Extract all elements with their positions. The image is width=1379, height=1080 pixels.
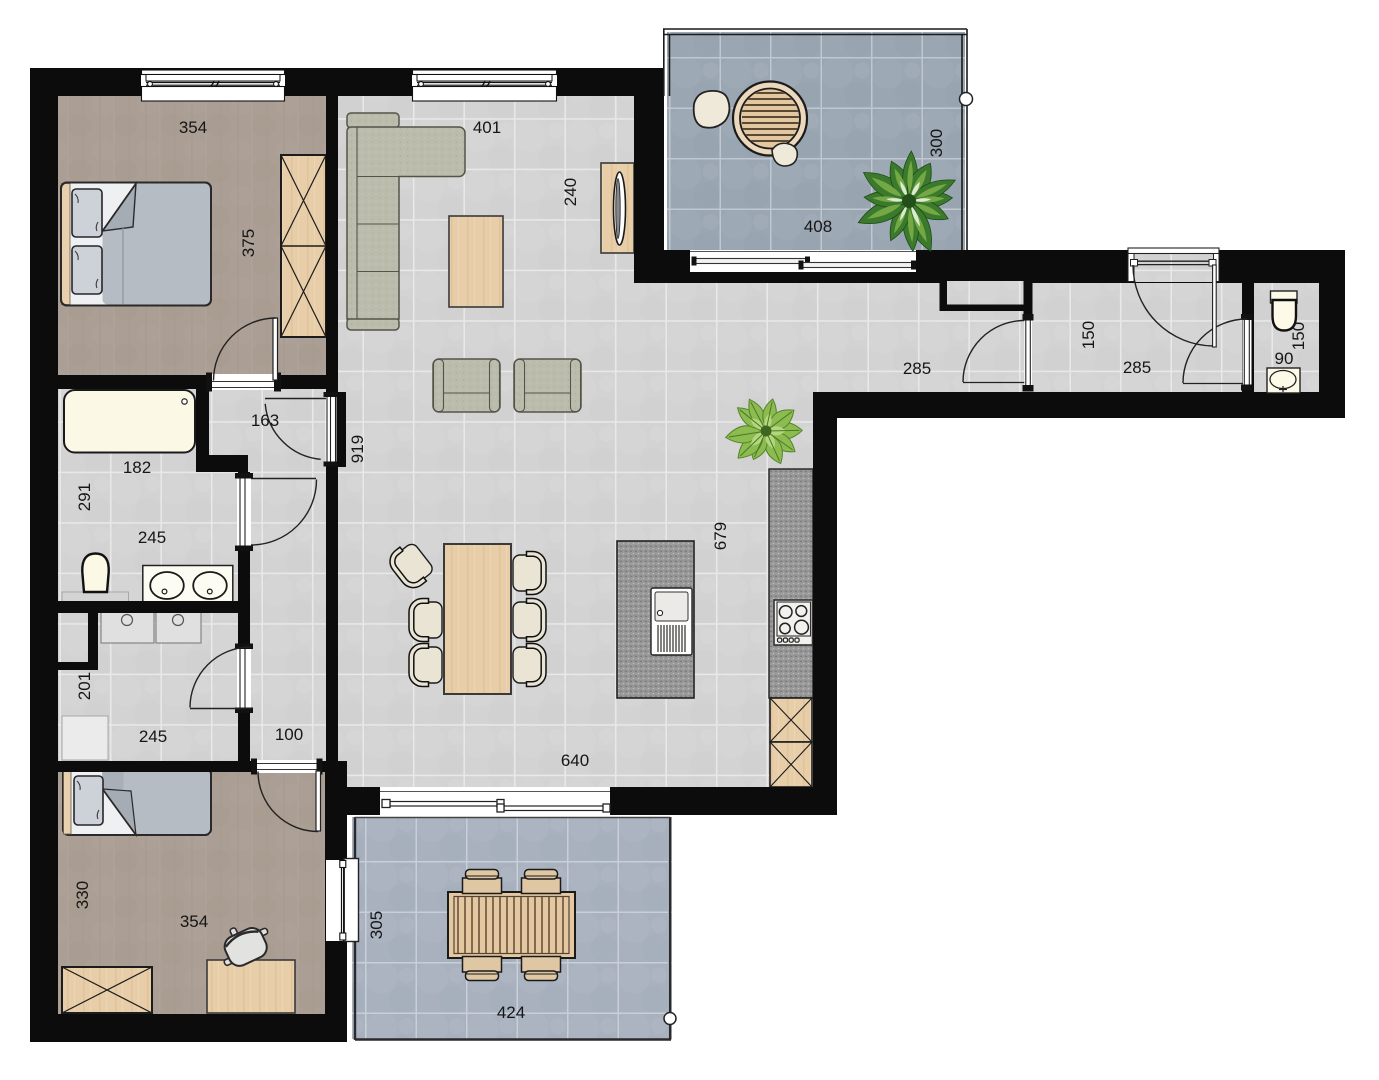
svg-text:375: 375 — [239, 229, 258, 257]
svg-text:679: 679 — [711, 522, 730, 550]
svg-text:919: 919 — [348, 435, 367, 463]
svg-text:305: 305 — [367, 911, 386, 939]
svg-text:424: 424 — [497, 1003, 525, 1022]
svg-text:245: 245 — [138, 528, 166, 547]
svg-text:330: 330 — [73, 881, 92, 909]
svg-text:640: 640 — [561, 751, 589, 770]
svg-text:245: 245 — [139, 727, 167, 746]
svg-text:354: 354 — [179, 118, 207, 137]
svg-text:100: 100 — [275, 725, 303, 744]
svg-text:163: 163 — [251, 411, 279, 430]
svg-text:285: 285 — [903, 359, 931, 378]
svg-text:408: 408 — [804, 217, 832, 236]
svg-text:150: 150 — [1289, 322, 1308, 350]
svg-text:300: 300 — [927, 129, 946, 157]
svg-text:401: 401 — [473, 118, 501, 137]
svg-text:182: 182 — [123, 458, 151, 477]
svg-text:240: 240 — [561, 178, 580, 206]
svg-text:291: 291 — [75, 483, 94, 511]
svg-text:354: 354 — [180, 912, 208, 931]
svg-text:201: 201 — [75, 672, 94, 700]
svg-text:90: 90 — [1275, 349, 1294, 368]
svg-text:285: 285 — [1123, 358, 1151, 377]
svg-text:150: 150 — [1079, 321, 1098, 349]
